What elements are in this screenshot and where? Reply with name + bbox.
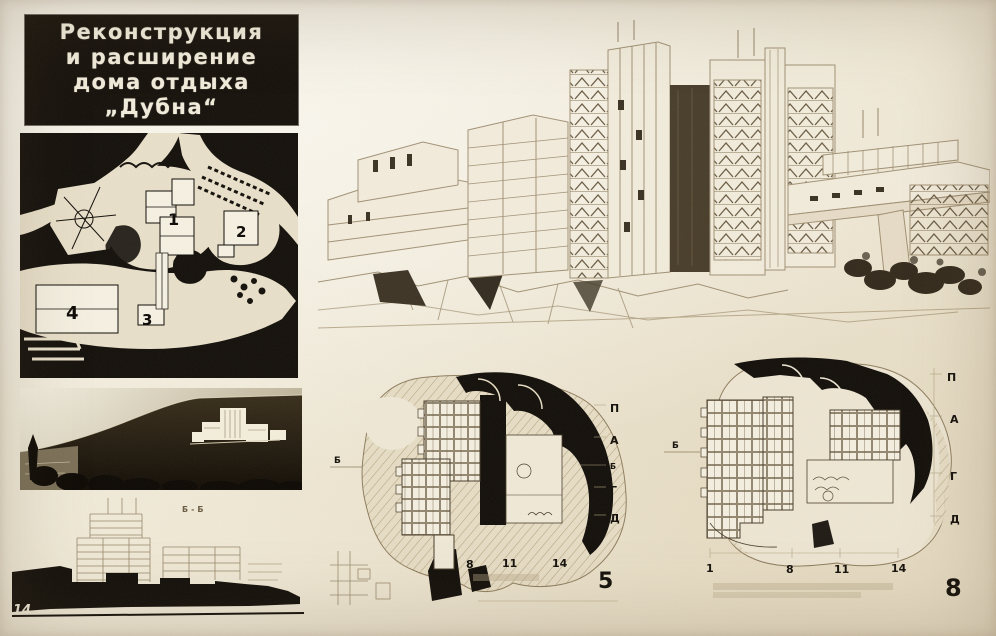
site-plan-number-4: 4 (66, 303, 79, 324)
plan5-axis-label-3: Г (610, 484, 617, 497)
site-plan-drawing: 1 2 3 4 (20, 133, 298, 378)
section-drawing: Б-Б 14 (10, 494, 308, 624)
plan5-axis-label-4: Д (610, 512, 620, 525)
site-plan-number-2: 2 (236, 223, 246, 241)
title-block: Реконструкция и расширение дома отдыха „… (25, 15, 298, 125)
plan8-left-axis-label: Б (672, 441, 679, 451)
plan8-grid-number-2: 11 (834, 563, 849, 576)
plan5-grid-number-2: 14 (552, 557, 568, 570)
plan5-grid-number-0: 8 (466, 558, 474, 571)
plan5-axis-label-0: П (610, 402, 619, 415)
plan5-axis-label-1: А (610, 434, 619, 447)
floor-plan-level-8: Б П А Г Д 1 8 11 14 8 (662, 348, 990, 620)
plan8-axis-label-0: П (947, 371, 956, 384)
section-ground-mass (12, 566, 300, 612)
perspective-rendering (318, 10, 990, 335)
plan5-grid-number-1: 11 (502, 557, 517, 570)
plan8-axis-label-2: Г (950, 470, 957, 483)
title-line-2: и расширение (66, 45, 257, 70)
title-line-4: „Дубна“ (105, 95, 219, 120)
plan8-grid-number-1: 8 (786, 563, 794, 576)
plan5-sheet-number: 5 (598, 569, 613, 594)
floor-plan-level-5: Б П А Б Г Д 8 11 14 5 (328, 355, 650, 613)
section-sheet-number: 14 (13, 603, 31, 618)
title-line-3: дома отдыха (73, 70, 250, 95)
plan8-axis-label-1: А (950, 413, 959, 426)
photo-board: Реконструкция и расширение дома отдыха „… (0, 0, 996, 636)
plan5-left-axis-label: Б (334, 456, 341, 466)
site-plan-number-1: 1 (168, 210, 179, 229)
title-line-1: Реконструкция (60, 20, 264, 45)
plan8-grid-number-0: 1 (706, 562, 714, 575)
site-photo-panorama (20, 388, 302, 490)
plan5-axis-label-2: Б (610, 462, 616, 471)
plan8-axis-label-3: Д (950, 513, 960, 526)
section-label: Б-Б (182, 505, 207, 514)
plan8-caption-blur-1 (713, 583, 893, 590)
plan8-caption-blur-2 (713, 592, 861, 598)
plan8-sheet-number: 8 (945, 574, 962, 602)
plan5-caption-blur (473, 574, 539, 581)
site-plan-number-3: 3 (142, 311, 152, 329)
plan8-grid-number-3: 14 (891, 562, 907, 575)
